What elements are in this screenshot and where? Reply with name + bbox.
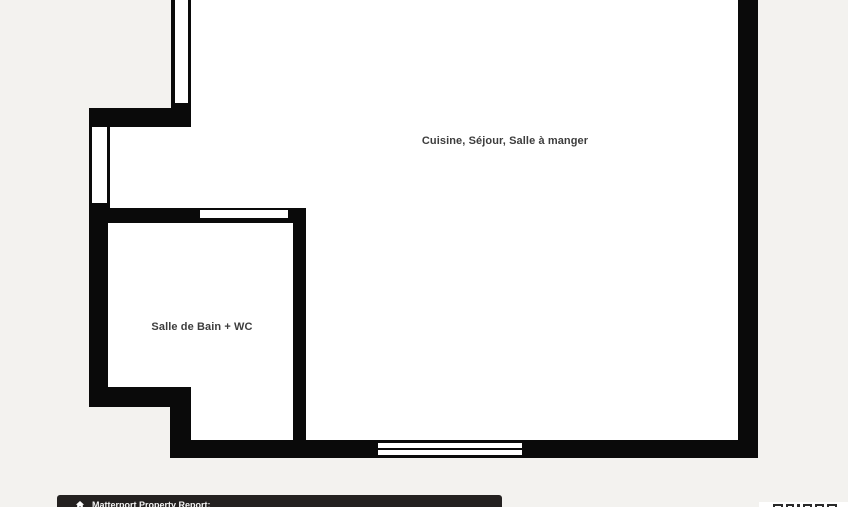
window-bottom-mullion	[378, 448, 522, 450]
floor-main-room-top	[191, 0, 738, 130]
clipped-logo-box	[759, 502, 848, 507]
room-label-bathroom-wc: Salle de Bain + WC	[122, 321, 282, 333]
wall-left-window-inner	[107, 127, 110, 208]
window-bathroom-partition	[200, 210, 288, 218]
wall-top-left-inner	[188, 0, 191, 108]
window-bottom	[377, 442, 523, 456]
wall-bathroom-right	[293, 208, 306, 458]
house-icon	[75, 500, 85, 507]
room-label-kitchen-living-dining: Cuisine, Séjour, Salle à manger	[375, 135, 635, 147]
report-bar-title: Matterport Property Report:	[92, 500, 211, 507]
wall-upper-horizontal	[89, 108, 191, 127]
window-top-left-glass	[175, 0, 188, 103]
wall-left-lower	[89, 208, 108, 407]
floor-main-room-bottom	[191, 387, 738, 440]
report-bar: Matterport Property Report:	[57, 495, 502, 507]
wall-top-left-outer	[171, 0, 175, 108]
floor-plan-view: Cuisine, Séjour, Salle à manger Salle de…	[0, 0, 848, 507]
wall-left-window-outer	[89, 127, 92, 208]
floor-main-room-middle	[92, 127, 738, 387]
wall-right	[738, 0, 758, 458]
